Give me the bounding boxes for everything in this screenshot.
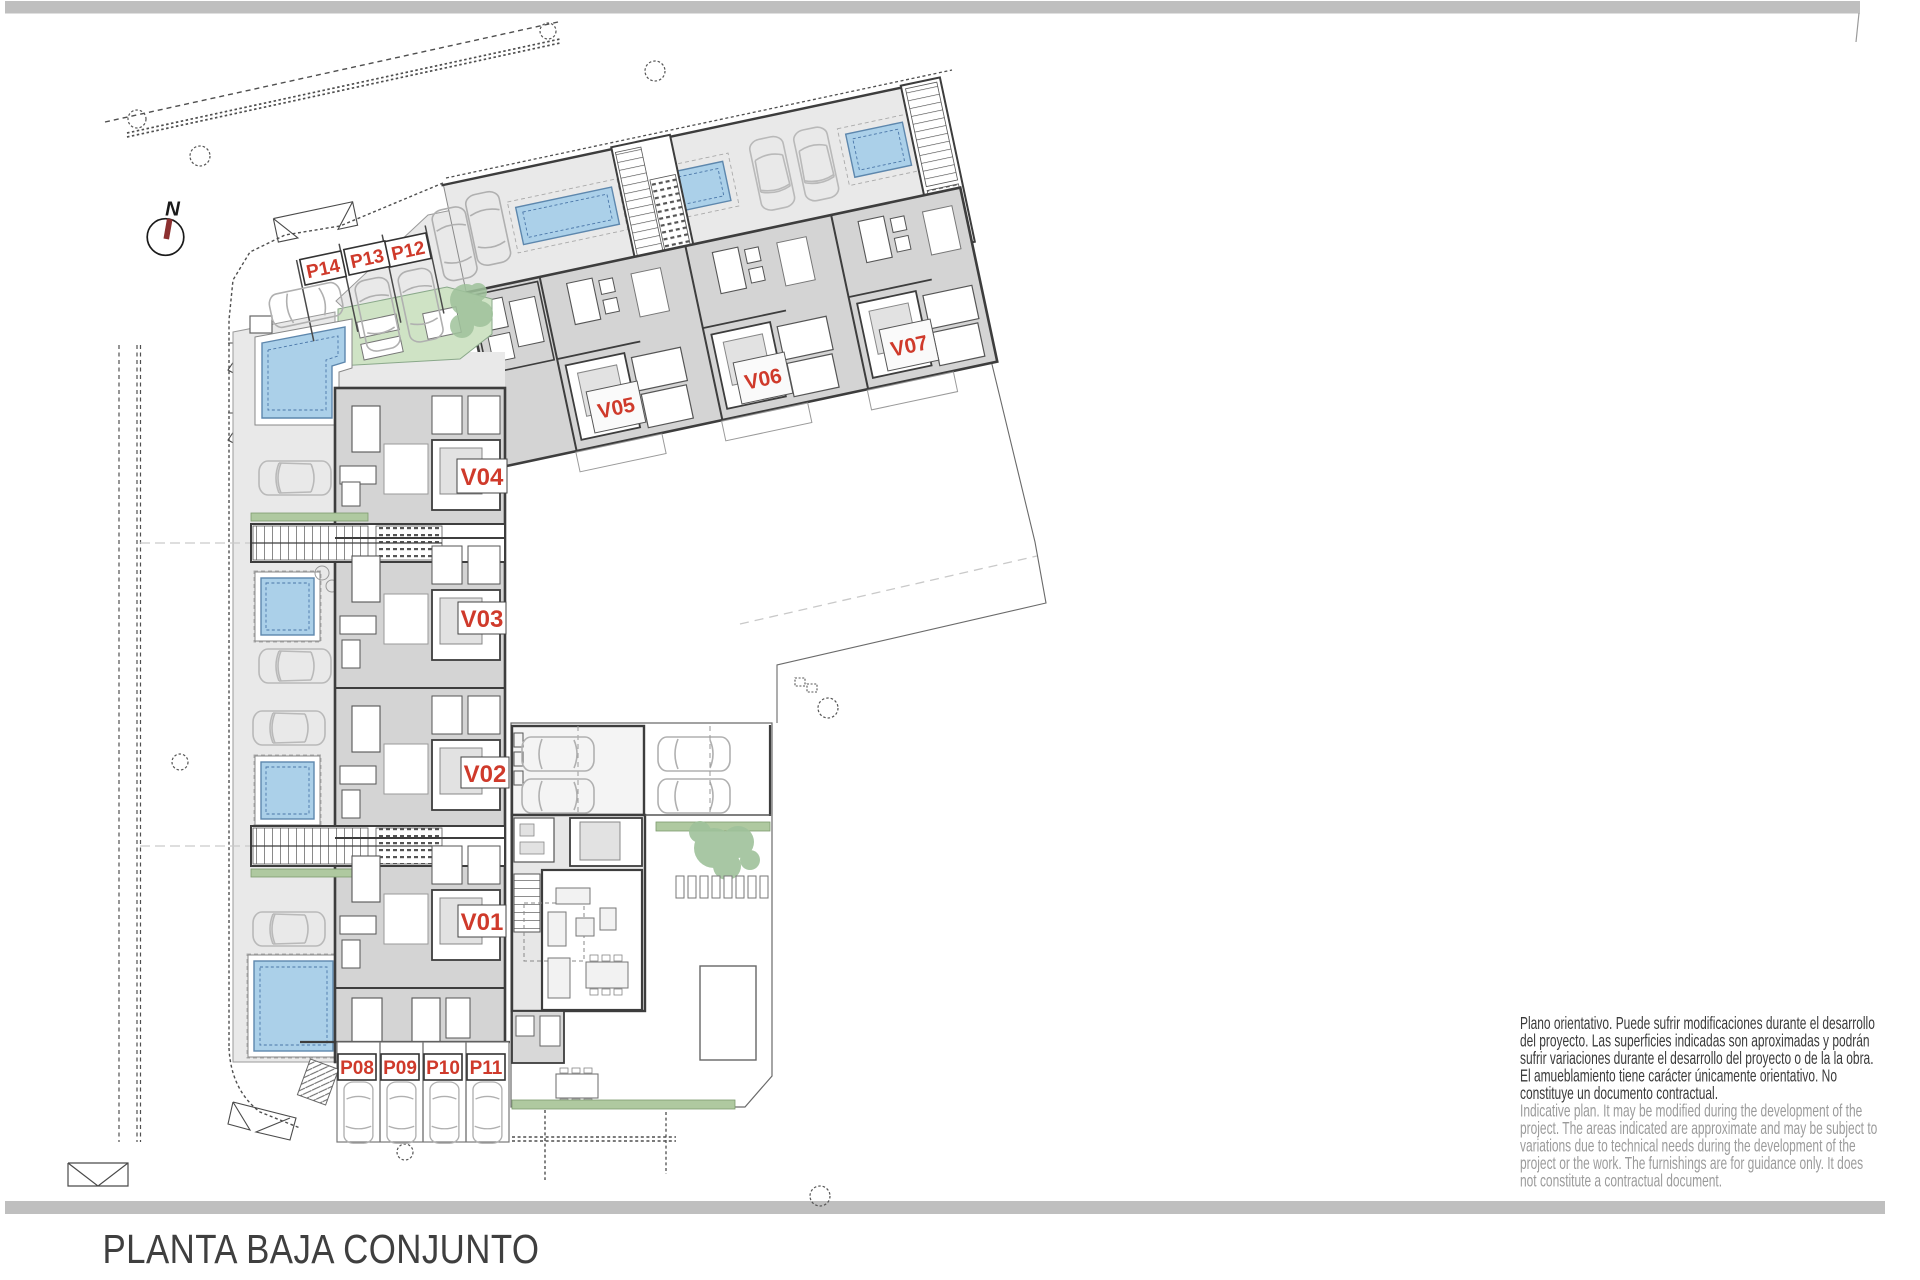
svg-text:V02: V02 [464,761,507,788]
svg-text:V03: V03 [461,606,504,633]
svg-text:P09: P09 [383,1058,417,1079]
svg-text:N: N [165,198,181,221]
svg-text:V01: V01 [461,909,504,936]
svg-text:P08: P08 [340,1058,374,1079]
svg-text:not constitute a contractual d: not constitute a contractual document. [1520,1171,1722,1191]
svg-text:PLANTA BAJA CONJUNTO: PLANTA BAJA CONJUNTO [103,1227,540,1272]
svg-text:P11: P11 [470,1058,503,1079]
svg-text:V04: V04 [461,464,504,491]
svg-text:P10: P10 [426,1058,460,1079]
